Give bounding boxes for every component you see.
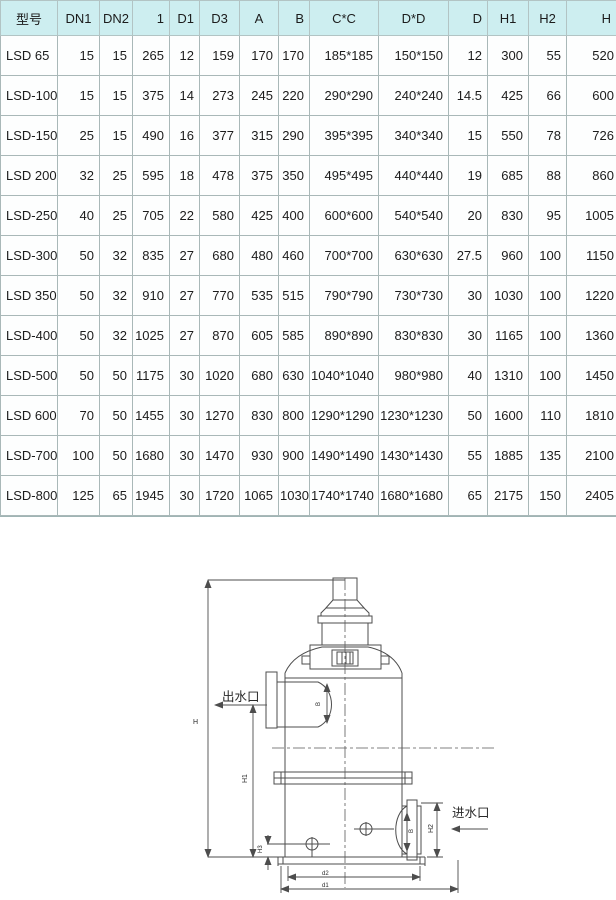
spec-table-section: 型号DN1DN21D1D3ABC*CD*DDH1H2H LSD 65151526… (0, 0, 616, 517)
value-cell: 170 (279, 36, 310, 76)
table-row: LSD 200322559518478375350495*495440*4401… (1, 156, 616, 196)
value-cell: 1600 (488, 396, 529, 436)
value-cell: 460 (279, 236, 310, 276)
column-header: H2 (529, 1, 567, 36)
dim-label-base-inner: d2 (322, 871, 329, 877)
table-row: LSD 600705014553012708308001290*12901230… (1, 396, 616, 436)
value-cell: 12 (170, 36, 200, 76)
model-cell: LSD-300 (1, 236, 58, 276)
dim-label-body: H1 (242, 774, 249, 783)
model-cell: LSD 600 (1, 396, 58, 436)
value-cell: 30 (449, 316, 488, 356)
value-cell: 15 (58, 36, 100, 76)
value-cell: 15 (100, 36, 133, 76)
value-cell: 55 (529, 36, 567, 76)
value-cell: 835 (133, 236, 170, 276)
table-row: LSD-800125651945301720106510301740*17401… (1, 476, 616, 516)
column-header: DN2 (100, 1, 133, 36)
value-cell: 95 (529, 196, 567, 236)
table-row: LSD-4005032102527870605585890*890830*830… (1, 316, 616, 356)
value-cell: 1720 (200, 476, 240, 516)
value-cell: 16 (170, 116, 200, 156)
value-cell: 50 (58, 276, 100, 316)
vessel-outline (266, 578, 425, 866)
value-cell: 726 (567, 116, 616, 156)
value-cell: 27 (170, 276, 200, 316)
value-cell: 1025 (133, 316, 170, 356)
value-cell: 960 (488, 236, 529, 276)
value-cell: 1945 (133, 476, 170, 516)
model-cell: LSD 350 (1, 276, 58, 316)
value-cell: 65 (100, 476, 133, 516)
column-header: D*D (379, 1, 449, 36)
dimension-lines (208, 580, 488, 893)
value-cell: 600 (567, 76, 616, 116)
value-cell: 185*185 (310, 36, 379, 76)
value-cell: 375 (240, 156, 279, 196)
value-cell: 25 (100, 156, 133, 196)
value-cell: 425 (488, 76, 529, 116)
model-cell: LSD-700 (1, 436, 58, 476)
value-cell: 730*730 (379, 276, 449, 316)
table-row: LSD-250402570522580425400600*600540*5402… (1, 196, 616, 236)
outlet-label: 出水口 (222, 690, 260, 704)
model-cell: LSD-400 (1, 316, 58, 356)
value-cell: 265 (133, 36, 170, 76)
value-cell: 790*790 (310, 276, 379, 316)
value-cell: 1450 (567, 356, 616, 396)
value-cell: 1230*1230 (379, 396, 449, 436)
value-cell: 19 (449, 156, 488, 196)
value-cell: 520 (567, 36, 616, 76)
value-cell: 1430*1430 (379, 436, 449, 476)
model-cell: LSD-250 (1, 196, 58, 236)
model-cell: LSD-800 (1, 476, 58, 516)
value-cell: 910 (133, 276, 170, 316)
value-cell: 900 (279, 436, 310, 476)
value-cell: 2100 (567, 436, 616, 476)
value-cell: 890*890 (310, 316, 379, 356)
value-cell: 425 (240, 196, 279, 236)
model-cell: LSD-100 (1, 76, 58, 116)
table-row: LSD-7001005016803014709309001490*1490143… (1, 436, 616, 476)
value-cell: 1030 (488, 276, 529, 316)
value-cell: 30 (170, 356, 200, 396)
value-cell: 50 (100, 396, 133, 436)
value-cell: 25 (100, 196, 133, 236)
base-plate (278, 857, 425, 866)
spec-table: 型号DN1DN21D1D3ABC*CD*DDH1H2H LSD 65151526… (0, 0, 616, 516)
value-cell: 1150 (567, 236, 616, 276)
value-cell: 540*540 (379, 196, 449, 236)
value-cell: 1005 (567, 196, 616, 236)
value-cell: 440*440 (379, 156, 449, 196)
value-cell: 300 (488, 36, 529, 76)
value-cell: 135 (529, 436, 567, 476)
value-cell: 930 (240, 436, 279, 476)
value-cell: 830*830 (379, 316, 449, 356)
value-cell: 32 (100, 276, 133, 316)
value-cell: 14.5 (449, 76, 488, 116)
value-cell: 50 (58, 236, 100, 276)
value-cell: 478 (200, 156, 240, 196)
column-header: C*C (310, 1, 379, 36)
value-cell: 1360 (567, 316, 616, 356)
value-cell: 1030 (279, 476, 310, 516)
value-cell: 50 (58, 316, 100, 356)
dim-label-outlet-port: B (316, 702, 322, 706)
value-cell: 830 (240, 396, 279, 436)
value-cell: 30 (170, 476, 200, 516)
value-cell: 50 (58, 356, 100, 396)
value-cell: 630 (279, 356, 310, 396)
value-cell: 680 (200, 236, 240, 276)
value-cell: 170 (240, 36, 279, 76)
value-cell: 600*600 (310, 196, 379, 236)
value-cell: 980*980 (379, 356, 449, 396)
value-cell: 27 (170, 316, 200, 356)
dim-label-base-outer: d1 (322, 883, 329, 889)
value-cell: 395*395 (310, 116, 379, 156)
value-cell: 830 (488, 196, 529, 236)
value-cell: 273 (200, 76, 240, 116)
value-cell: 70 (58, 396, 100, 436)
value-cell: 50 (449, 396, 488, 436)
model-cell: LSD 65 (1, 36, 58, 76)
model-cell: LSD-500 (1, 356, 58, 396)
value-cell: 770 (200, 276, 240, 316)
table-row: LSD-100151537514273245220290*290240*2401… (1, 76, 616, 116)
value-cell: 340*340 (379, 116, 449, 156)
value-cell: 1165 (488, 316, 529, 356)
value-cell: 12 (449, 36, 488, 76)
dim-label-inlet-port: B (409, 829, 415, 833)
value-cell: 1310 (488, 356, 529, 396)
value-cell: 100 (58, 436, 100, 476)
value-cell: 605 (240, 316, 279, 356)
column-header: A (240, 1, 279, 36)
column-header: H1 (488, 1, 529, 36)
dim-label-left: H3 (258, 845, 264, 853)
value-cell: 150 (529, 476, 567, 516)
value-cell: 1885 (488, 436, 529, 476)
value-cell: 18 (170, 156, 200, 196)
value-cell: 800 (279, 396, 310, 436)
value-cell: 110 (529, 396, 567, 436)
value-cell: 32 (100, 316, 133, 356)
value-cell: 32 (58, 156, 100, 196)
value-cell: 40 (449, 356, 488, 396)
value-cell: 78 (529, 116, 567, 156)
model-cell: LSD-150 (1, 116, 58, 156)
value-cell: 1270 (200, 396, 240, 436)
center-lines (272, 578, 497, 888)
value-cell: 245 (240, 76, 279, 116)
value-cell: 290*290 (310, 76, 379, 116)
value-cell: 30 (170, 436, 200, 476)
value-cell: 25 (58, 116, 100, 156)
column-header: 型号 (1, 1, 58, 36)
value-cell: 1490*1490 (310, 436, 379, 476)
value-cell: 220 (279, 76, 310, 116)
value-cell: 100 (529, 316, 567, 356)
dim-label-total: H (193, 719, 198, 726)
inlet-label: 进水口 (452, 806, 490, 820)
table-row: LSD-150251549016377315290395*395340*3401… (1, 116, 616, 156)
value-cell: 1680*1680 (379, 476, 449, 516)
table-row: LSD 65151526512159170170185*185150*15012… (1, 36, 616, 76)
value-cell: 480 (240, 236, 279, 276)
value-cell: 1040*1040 (310, 356, 379, 396)
header-row: 型号DN1DN21D1D3ABC*CD*DDH1H2H (1, 1, 616, 36)
column-header: H (567, 1, 616, 36)
value-cell: 315 (240, 116, 279, 156)
value-cell: 1455 (133, 396, 170, 436)
value-cell: 14 (170, 76, 200, 116)
value-cell: 27 (170, 236, 200, 276)
value-cell: 515 (279, 276, 310, 316)
value-cell: 159 (200, 36, 240, 76)
value-cell: 15 (58, 76, 100, 116)
value-cell: 22 (170, 196, 200, 236)
value-cell: 2405 (567, 476, 616, 516)
value-cell: 595 (133, 156, 170, 196)
table-body: LSD 65151526512159170170185*185150*15012… (1, 36, 616, 516)
equipment-diagram: 出水口 进水口 H H1 H3 H2 B B d2 d1 (0, 516, 616, 900)
value-cell: 860 (567, 156, 616, 196)
value-cell: 125 (58, 476, 100, 516)
value-cell: 535 (240, 276, 279, 316)
value-cell: 495*495 (310, 156, 379, 196)
value-cell: 240*240 (379, 76, 449, 116)
value-cell: 400 (279, 196, 310, 236)
value-cell: 1065 (240, 476, 279, 516)
value-cell: 30 (449, 276, 488, 316)
value-cell: 50 (100, 436, 133, 476)
value-cell: 705 (133, 196, 170, 236)
value-cell: 100 (529, 236, 567, 276)
value-cell: 40 (58, 196, 100, 236)
value-cell: 1290*1290 (310, 396, 379, 436)
table-row: LSD-300503283527680480460700*700630*6302… (1, 236, 616, 276)
value-cell: 2175 (488, 476, 529, 516)
value-cell: 1220 (567, 276, 616, 316)
value-cell: 490 (133, 116, 170, 156)
dim-label-right: H2 (428, 824, 435, 833)
inlet-pipe (396, 806, 407, 854)
value-cell: 50 (100, 356, 133, 396)
table-row: LSD 350503291027770535515790*790730*7303… (1, 276, 616, 316)
value-cell: 88 (529, 156, 567, 196)
column-header: D3 (200, 1, 240, 36)
value-cell: 1740*1740 (310, 476, 379, 516)
value-cell: 32 (100, 236, 133, 276)
value-cell: 680 (240, 356, 279, 396)
value-cell: 66 (529, 76, 567, 116)
outlet-flange (266, 672, 277, 728)
value-cell: 290 (279, 116, 310, 156)
value-cell: 1020 (200, 356, 240, 396)
value-cell: 1810 (567, 396, 616, 436)
value-cell: 1470 (200, 436, 240, 476)
value-cell: 630*630 (379, 236, 449, 276)
value-cell: 375 (133, 76, 170, 116)
value-cell: 15 (100, 76, 133, 116)
value-cell: 377 (200, 116, 240, 156)
value-cell: 15 (449, 116, 488, 156)
column-header: B (279, 1, 310, 36)
value-cell: 350 (279, 156, 310, 196)
column-header: DN1 (58, 1, 100, 36)
value-cell: 100 (529, 276, 567, 316)
value-cell: 580 (200, 196, 240, 236)
value-cell: 55 (449, 436, 488, 476)
value-cell: 700*700 (310, 236, 379, 276)
value-cell: 27.5 (449, 236, 488, 276)
model-cell: LSD 200 (1, 156, 58, 196)
value-cell: 30 (170, 396, 200, 436)
value-cell: 150*150 (379, 36, 449, 76)
value-cell: 685 (488, 156, 529, 196)
column-header: D (449, 1, 488, 36)
value-cell: 15 (100, 116, 133, 156)
column-header: D1 (170, 1, 200, 36)
value-cell: 100 (529, 356, 567, 396)
table-row: LSD-500505011753010206806301040*1040980*… (1, 356, 616, 396)
value-cell: 870 (200, 316, 240, 356)
value-cell: 1175 (133, 356, 170, 396)
value-cell: 585 (279, 316, 310, 356)
value-cell: 550 (488, 116, 529, 156)
column-header: 1 (133, 1, 170, 36)
value-cell: 65 (449, 476, 488, 516)
value-cell: 20 (449, 196, 488, 236)
value-cell: 1680 (133, 436, 170, 476)
